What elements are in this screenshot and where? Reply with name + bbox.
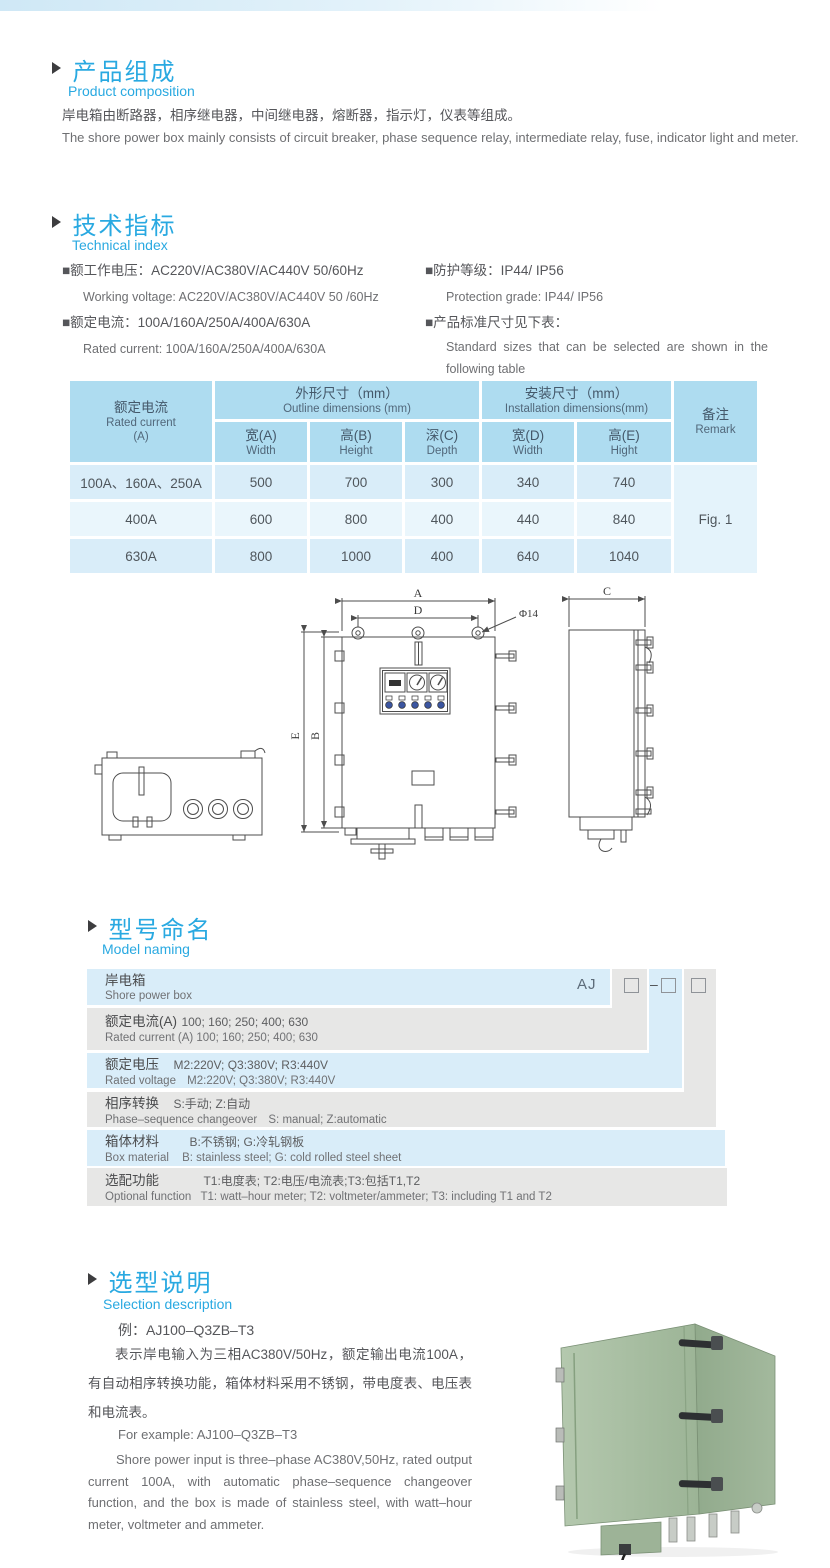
front-bottom-fittings <box>345 828 493 859</box>
outline-en: Outline dimensions (mm) <box>215 402 479 416</box>
col-header-remark: 备注 Remark <box>674 381 757 462</box>
height-e-en: Hight <box>577 444 671 458</box>
model-code-box-2 <box>661 978 676 993</box>
row3-height-b: 1000 <box>310 539 402 573</box>
product-photo <box>543 1312 830 1560</box>
row2-height-e: 840 <box>577 502 671 536</box>
col-group-outline-dimensions: 外形尺寸（mm） Outline dimensions (mm) <box>215 381 479 419</box>
row2-depth-c: 400 <box>405 502 479 536</box>
width-d-en: Width <box>482 444 574 458</box>
side-view-drawing <box>569 596 653 851</box>
model-row-phase-sequence: 相序转换 S:手动; Z:自动 Phase–sequence changeove… <box>87 1092 716 1127</box>
section-model-naming-header: 型号命名 <box>88 910 212 945</box>
dimensions-table-wrap: 额定电流 Rated current (A) 外形尺寸（mm） Outline … <box>67 378 760 576</box>
section-title-cn: 选型说明 <box>108 1270 212 1297</box>
row-value-en: S: manual; Z:automatic <box>268 1114 386 1126</box>
specs-left-column: ■额工作电压：AC220V/AC380V/AC440V 50/60Hz Work… <box>62 258 417 362</box>
col-header-rated-current: 额定电流 Rated current (A) <box>70 381 212 462</box>
spec-rated-current-cn: ■额定电流：100A/160A/250A/400A/630A <box>62 310 417 336</box>
dim-label-d: D <box>414 603 423 617</box>
dim-label-hole: Φ14 <box>519 608 539 620</box>
row-label-cn: 相序转换 <box>105 1096 159 1111</box>
spec-rated-current-en: Rated current: 100A/160A/250A/400A/630A <box>62 336 417 362</box>
model-row-rated-voltage: 额定电压 M2:220V; Q3:380V; R3:440V Rated vol… <box>87 1053 682 1088</box>
spec-working-voltage-cn: ■额工作电压：AC220V/AC380V/AC440V 50/60Hz <box>62 258 417 284</box>
row-label-cn: 箱体材料 <box>105 1134 159 1149</box>
row-label-en: Rated voltage <box>105 1075 176 1087</box>
height-e-cn: 高(E) <box>577 427 671 444</box>
width-d-cn: 宽(D) <box>482 427 574 444</box>
section-selection-header: 选型说明 <box>88 1263 212 1298</box>
model-row-box-material: 箱体材料 B:不锈钢; G:冷轧钢板 Box material B: stain… <box>87 1130 725 1166</box>
row3-width-a: 800 <box>215 539 307 573</box>
dim-label-e: E <box>288 732 302 739</box>
dim-label-a: A <box>414 586 423 600</box>
model-naming-diagram: 岸电箱 Shore power box 额定电流(A) 100; 160; 25… <box>0 965 830 1211</box>
col-header-width-d: 宽(D) Width <box>482 422 574 462</box>
selection-example-cn: 例：AJ100–Q3ZB–T3 <box>118 1320 254 1340</box>
product-composition-desc-cn: 岸电箱由断路器，相序继电器，中间继电器，熔断器，指示灯，仪表等组成。 <box>62 104 521 124</box>
remark-en: Remark <box>674 423 757 437</box>
depth-c-en: Depth <box>405 444 479 458</box>
row3-width-d: 640 <box>482 539 574 573</box>
depth-c-cn: 深(C) <box>405 427 479 444</box>
dim-label-c: C <box>603 585 611 598</box>
spec-standard-sizes-cn: ■产品标准尺寸见下表： <box>425 310 770 336</box>
table-row: 630A 800 1000 400 640 1040 <box>70 539 757 573</box>
row-value-cn: M2:220V; Q3:380V; R3:440V <box>173 1058 328 1072</box>
row2-width-a: 600 <box>215 502 307 536</box>
section-arrow-icon <box>52 216 61 228</box>
page-top-tint <box>0 0 830 11</box>
row-value-en: 100; 160; 250; 400; 630 <box>196 1032 318 1044</box>
rated-current-unit: (A) <box>70 430 212 444</box>
installation-cn: 安装尺寸（mm） <box>482 385 671 402</box>
col-header-width-a: 宽(A) Width <box>215 422 307 462</box>
section-title-cn: 产品组成 <box>72 59 176 86</box>
spec-standard-sizes-en: Standard sizes that can be selected are … <box>425 336 768 380</box>
section-arrow-icon <box>52 62 61 74</box>
selection-desc-cn: 表示岸电输入为三相AC380V/50Hz，额定输出电流100A，有自动相序转换功… <box>88 1340 472 1427</box>
outline-drawing: A D Φ14 E B C <box>85 585 685 885</box>
section-product-composition-header: 产品组成 <box>52 52 176 87</box>
section-title-cn: 技术指标 <box>72 213 176 240</box>
width-a-en: Width <box>215 444 307 458</box>
height-b-en: Height <box>310 444 402 458</box>
section-arrow-icon <box>88 920 97 932</box>
row3-current: 630A <box>70 539 212 573</box>
section-title-en: Model naming <box>102 941 190 957</box>
section-title-en: Product composition <box>68 83 195 99</box>
selection-desc-en: Shore power input is three–phase AC380V,… <box>88 1449 472 1535</box>
meter-panel <box>380 668 450 714</box>
row3-height-e: 1040 <box>577 539 671 573</box>
row2-height-b: 800 <box>310 502 402 536</box>
row2-width-d: 440 <box>482 502 574 536</box>
table-row: 100A、160A、250A 500 700 300 340 740 Fig. … <box>70 465 757 499</box>
catalog-page: 产品组成 Product composition 岸电箱由断路器，相序继电器，中… <box>0 0 830 1568</box>
height-b-cn: 高(B) <box>310 427 402 444</box>
row-label-cn: 额定电流(A) <box>105 1014 177 1029</box>
width-a-cn: 宽(A) <box>215 427 307 444</box>
col-group-installation-dimensions: 安装尺寸（mm） Installation dimensions(mm) <box>482 381 671 419</box>
row1-current: 100A、160A、250A <box>70 465 212 499</box>
model-row-rated-current: 额定电流(A) 100; 160; 250; 400; 630 Rated cu… <box>87 1008 647 1050</box>
col-header-depth-c: 深(C) Depth <box>405 422 479 462</box>
nameplate <box>412 771 434 785</box>
row-label-en: Box material <box>105 1152 169 1164</box>
bottom-view-drawing <box>95 748 265 840</box>
row1-height-b: 700 <box>310 465 402 499</box>
col-header-height-e: 高(E) Hight <box>577 422 671 462</box>
row1-depth-c: 300 <box>405 465 479 499</box>
row3-depth-c: 400 <box>405 539 479 573</box>
section-title-en: Selection description <box>103 1296 232 1312</box>
dimensions-table: 额定电流 Rated current (A) 外形尺寸（mm） Outline … <box>67 378 760 576</box>
row-label-en: Rated current (A) <box>105 1032 193 1044</box>
specs-right-column: ■防护等级：IP44/ IP56 Protection grade: IP44/… <box>425 258 770 380</box>
front-view-drawing <box>301 598 516 859</box>
side-bottom-gland <box>580 817 632 851</box>
selection-example-en: For example: AJ100–Q3ZB–T3 <box>118 1427 297 1442</box>
product-composition-desc-en: The shore power box mainly consists of c… <box>62 130 799 145</box>
row-value-cn: S:手动; Z:自动 <box>173 1097 250 1111</box>
dim-label-b: B <box>308 732 322 740</box>
col-header-height-b: 高(B) Height <box>310 422 402 462</box>
outline-cn: 外形尺寸（mm） <box>215 385 479 402</box>
remark-value: Fig. 1 <box>674 465 757 573</box>
spec-working-voltage-en: Working voltage: AC220V/AC380V/AC440V 50… <box>62 284 417 310</box>
section-title-en: Technical index <box>72 237 168 253</box>
section-technical-index-header: 技术指标 <box>52 206 176 241</box>
spec-protection-grade-en: Protection grade: IP44/ IP56 <box>425 284 770 310</box>
remark-cn: 备注 <box>674 406 757 423</box>
section-title-cn: 型号命名 <box>108 917 212 944</box>
installation-en: Installation dimensions(mm) <box>482 402 671 416</box>
model-code-dash: – <box>650 976 658 992</box>
rated-current-en: Rated current <box>70 416 212 430</box>
row-label-cn: 额定电压 <box>105 1057 159 1072</box>
model-code-box-1 <box>624 978 639 993</box>
row-value-en: B: stainless steel; G: cold rolled steel… <box>182 1152 401 1164</box>
hinge-marks <box>335 651 344 817</box>
row-label-en: Phase–sequence changeover <box>105 1114 257 1126</box>
model-row-optional-function: 选配功能 T1:电度表; T2:电压/电流表;T3:包括T1,T2 Option… <box>87 1168 727 1206</box>
row-label-en: Optional function <box>105 1191 191 1203</box>
row-label-cn: 岸电箱 <box>105 972 610 989</box>
row-value-cn: 100; 160; 250; 400; 630 <box>181 1015 308 1029</box>
latch-marks <box>496 651 516 817</box>
section-arrow-icon <box>88 1273 97 1285</box>
row1-width-d: 340 <box>482 465 574 499</box>
spec-protection-grade-cn: ■防护等级：IP44/ IP56 <box>425 258 770 284</box>
model-code-box-3 <box>691 978 706 993</box>
row1-width-a: 500 <box>215 465 307 499</box>
table-row: 400A 600 800 400 440 840 <box>70 502 757 536</box>
row-label-cn: 选配功能 <box>105 1173 159 1188</box>
row-value-cn: T1:电度表; T2:电压/电流表;T3:包括T1,T2 <box>203 1174 420 1188</box>
row-value-cn: B:不锈钢; G:冷轧钢板 <box>189 1135 304 1149</box>
model-row-shore-power-box: 岸电箱 Shore power box <box>87 969 610 1005</box>
photo-shadow <box>568 1547 778 1557</box>
model-code-prefix: AJ <box>577 976 597 993</box>
row-label-en: Shore power box <box>105 989 610 1004</box>
cabinet-body <box>561 1324 775 1526</box>
rated-current-cn: 额定电流 <box>70 399 212 416</box>
row-value-en: T1: watt–hour meter; T2: voltmeter/ammet… <box>201 1191 552 1203</box>
row-value-en: M2:220V; Q3:380V; R3:440V <box>187 1075 335 1087</box>
row1-height-e: 740 <box>577 465 671 499</box>
row2-current: 400A <box>70 502 212 536</box>
